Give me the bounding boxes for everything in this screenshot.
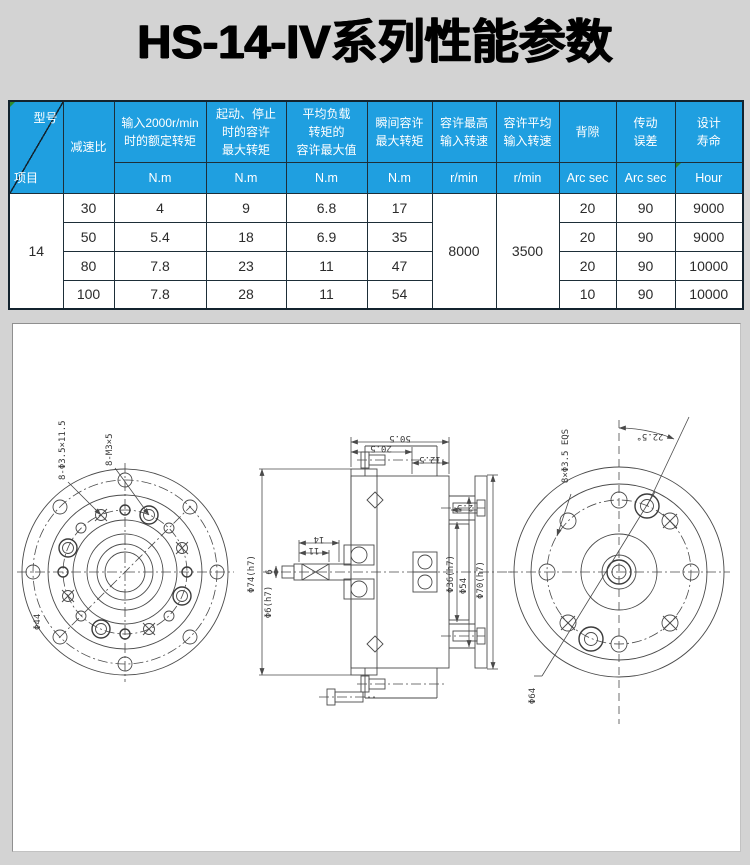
page: { "page": { "title": "HS-14-IV系列性能参数" },… [0,0,750,865]
corner-item-label: 项目 [14,169,38,186]
table-cell: 7.8 [114,280,206,309]
dia-6-label: Φ6(h7) [264,586,274,619]
dia-54-label: Φ54 [459,578,469,594]
table-cell: 9000 [675,193,743,222]
dia-36-label: Φ36(h7) [446,555,456,593]
unit-avg-speed: r/min [496,162,559,193]
front-holes-label: 8-Φ3.5×11.5 [58,420,68,480]
rear-view: Φ64 22.5° 8×Φ3.5 EQS [508,417,730,724]
technical-drawing-panel: 8-Φ3.5×11.5 8-M3×5 Φ44 [12,323,741,852]
table-row: 100 7.8 28 11 54 10 90 10000 [9,280,743,309]
header-max-input-speed: 容许最高 输入转速 [432,101,496,162]
page-title: HS-14-IV系列性能参数 [0,16,750,68]
table-cell: 10 [559,280,616,309]
header-start-stop-torque: 起动、停止 时的容许 最大转矩 [206,101,286,162]
corner-marker [10,102,15,107]
section-view: 50.5 20.5 12.5 2.5 14 11 6 Φ74(h7) Φ6(h7… [247,433,513,705]
unit-instant: N.m [367,162,432,193]
corner-model-label: 型号 [33,109,57,126]
corner-marker [676,163,681,168]
unit-backlash: Arc sec [559,162,616,193]
cell-avg-speed: 3500 [496,193,559,309]
table-cell: 47 [367,251,432,280]
table-cell: 10000 [675,280,743,309]
header-row-labels: 型号 项目 减速比 输入2000r/min 时的额定转矩 起动、停止 时的容许 … [9,101,743,162]
dim-14: 14 [314,534,325,544]
table-cell: 20 [559,222,616,251]
cell-max-speed: 8000 [432,193,496,309]
table-cell: 17 [367,193,432,222]
table-cell: 35 [367,222,432,251]
rear-angle-label: 22.5° [636,431,663,441]
table-cell: 9000 [675,222,743,251]
table-row: 50 5.4 18 6.9 35 20 90 9000 [9,222,743,251]
dia-74-label: Φ74(h7) [247,555,257,593]
table-cell: 4 [114,193,206,222]
header-avg-input-speed: 容许平均 输入转速 [496,101,559,162]
performance-table: 型号 项目 减速比 输入2000r/min 时的额定转矩 起动、停止 时的容许 … [8,100,744,310]
rear-dia-label: Φ64 [528,688,538,704]
unit-life: Hour [675,162,743,193]
table-cell: 9 [206,193,286,222]
front-thread-label: 8-M3×5 [105,433,115,466]
technical-drawing: 8-Φ3.5×11.5 8-M3×5 Φ44 [13,324,740,851]
header-design-life: 设计 寿命 [675,101,743,162]
rear-holes-label: 8×Φ3.5 EQS [561,429,571,483]
table-cell: 20 [559,251,616,280]
table-cell: 20 [559,193,616,222]
table-cell: 11 [286,280,367,309]
dim-20-5: 20.5 [370,443,392,453]
header-ratio: 减速比 [63,101,114,193]
dim-6: 6 [265,569,275,574]
table-row: 80 7.8 23 11 47 20 90 10000 [9,251,743,280]
table-cell: 90 [616,193,675,222]
front-dia-label: Φ44 [33,614,43,630]
table-cell: 5.4 [114,222,206,251]
header-rated-torque: 输入2000r/min 时的额定转矩 [114,101,206,162]
table-cell: 54 [367,280,432,309]
table-cell: 90 [616,280,675,309]
table-cell: 23 [206,251,286,280]
unit-rated: N.m [114,162,206,193]
front-view: 8-Φ3.5×11.5 8-M3×5 Φ44 [17,420,234,682]
table-cell: 80 [63,251,114,280]
table-cell: 50 [63,222,114,251]
corner-cell: 型号 项目 [9,101,63,193]
header-instant-torque: 瞬间容许 最大转矩 [367,101,432,162]
dim-2-5: 2.5 [457,502,473,512]
table-cell: 100 [63,280,114,309]
table-cell: 10000 [675,251,743,280]
header-transmission-error: 传动 误差 [616,101,675,162]
table-cell: 6.8 [286,193,367,222]
unit-life-text: Hour [695,171,722,185]
header-backlash: 背隙 [559,101,616,162]
table-cell: 18 [206,222,286,251]
cell-model: 14 [9,193,63,309]
dia-70-label: Φ70(h7) [476,561,486,599]
table-cell: 11 [286,251,367,280]
table-cell: 28 [206,280,286,309]
table-row: 14 30 4 9 6.8 17 8000 3500 20 90 9000 [9,193,743,222]
unit-max-speed: r/min [432,162,496,193]
table-cell: 90 [616,251,675,280]
header-avg-load-torque: 平均负载 转矩的 容许最大值 [286,101,367,162]
unit-avg-load: N.m [286,162,367,193]
table-cell: 7.8 [114,251,206,280]
dim-12-5: 12.5 [419,454,441,464]
unit-start-stop: N.m [206,162,286,193]
table-cell: 90 [616,222,675,251]
table-cell: 6.9 [286,222,367,251]
table-cell: 30 [63,193,114,222]
header-row-units: N.m N.m N.m N.m r/min r/min Arc sec Arc … [9,162,743,193]
unit-error: Arc sec [616,162,675,193]
dim-11: 11 [309,545,320,555]
dim-50-5: 50.5 [389,433,411,443]
